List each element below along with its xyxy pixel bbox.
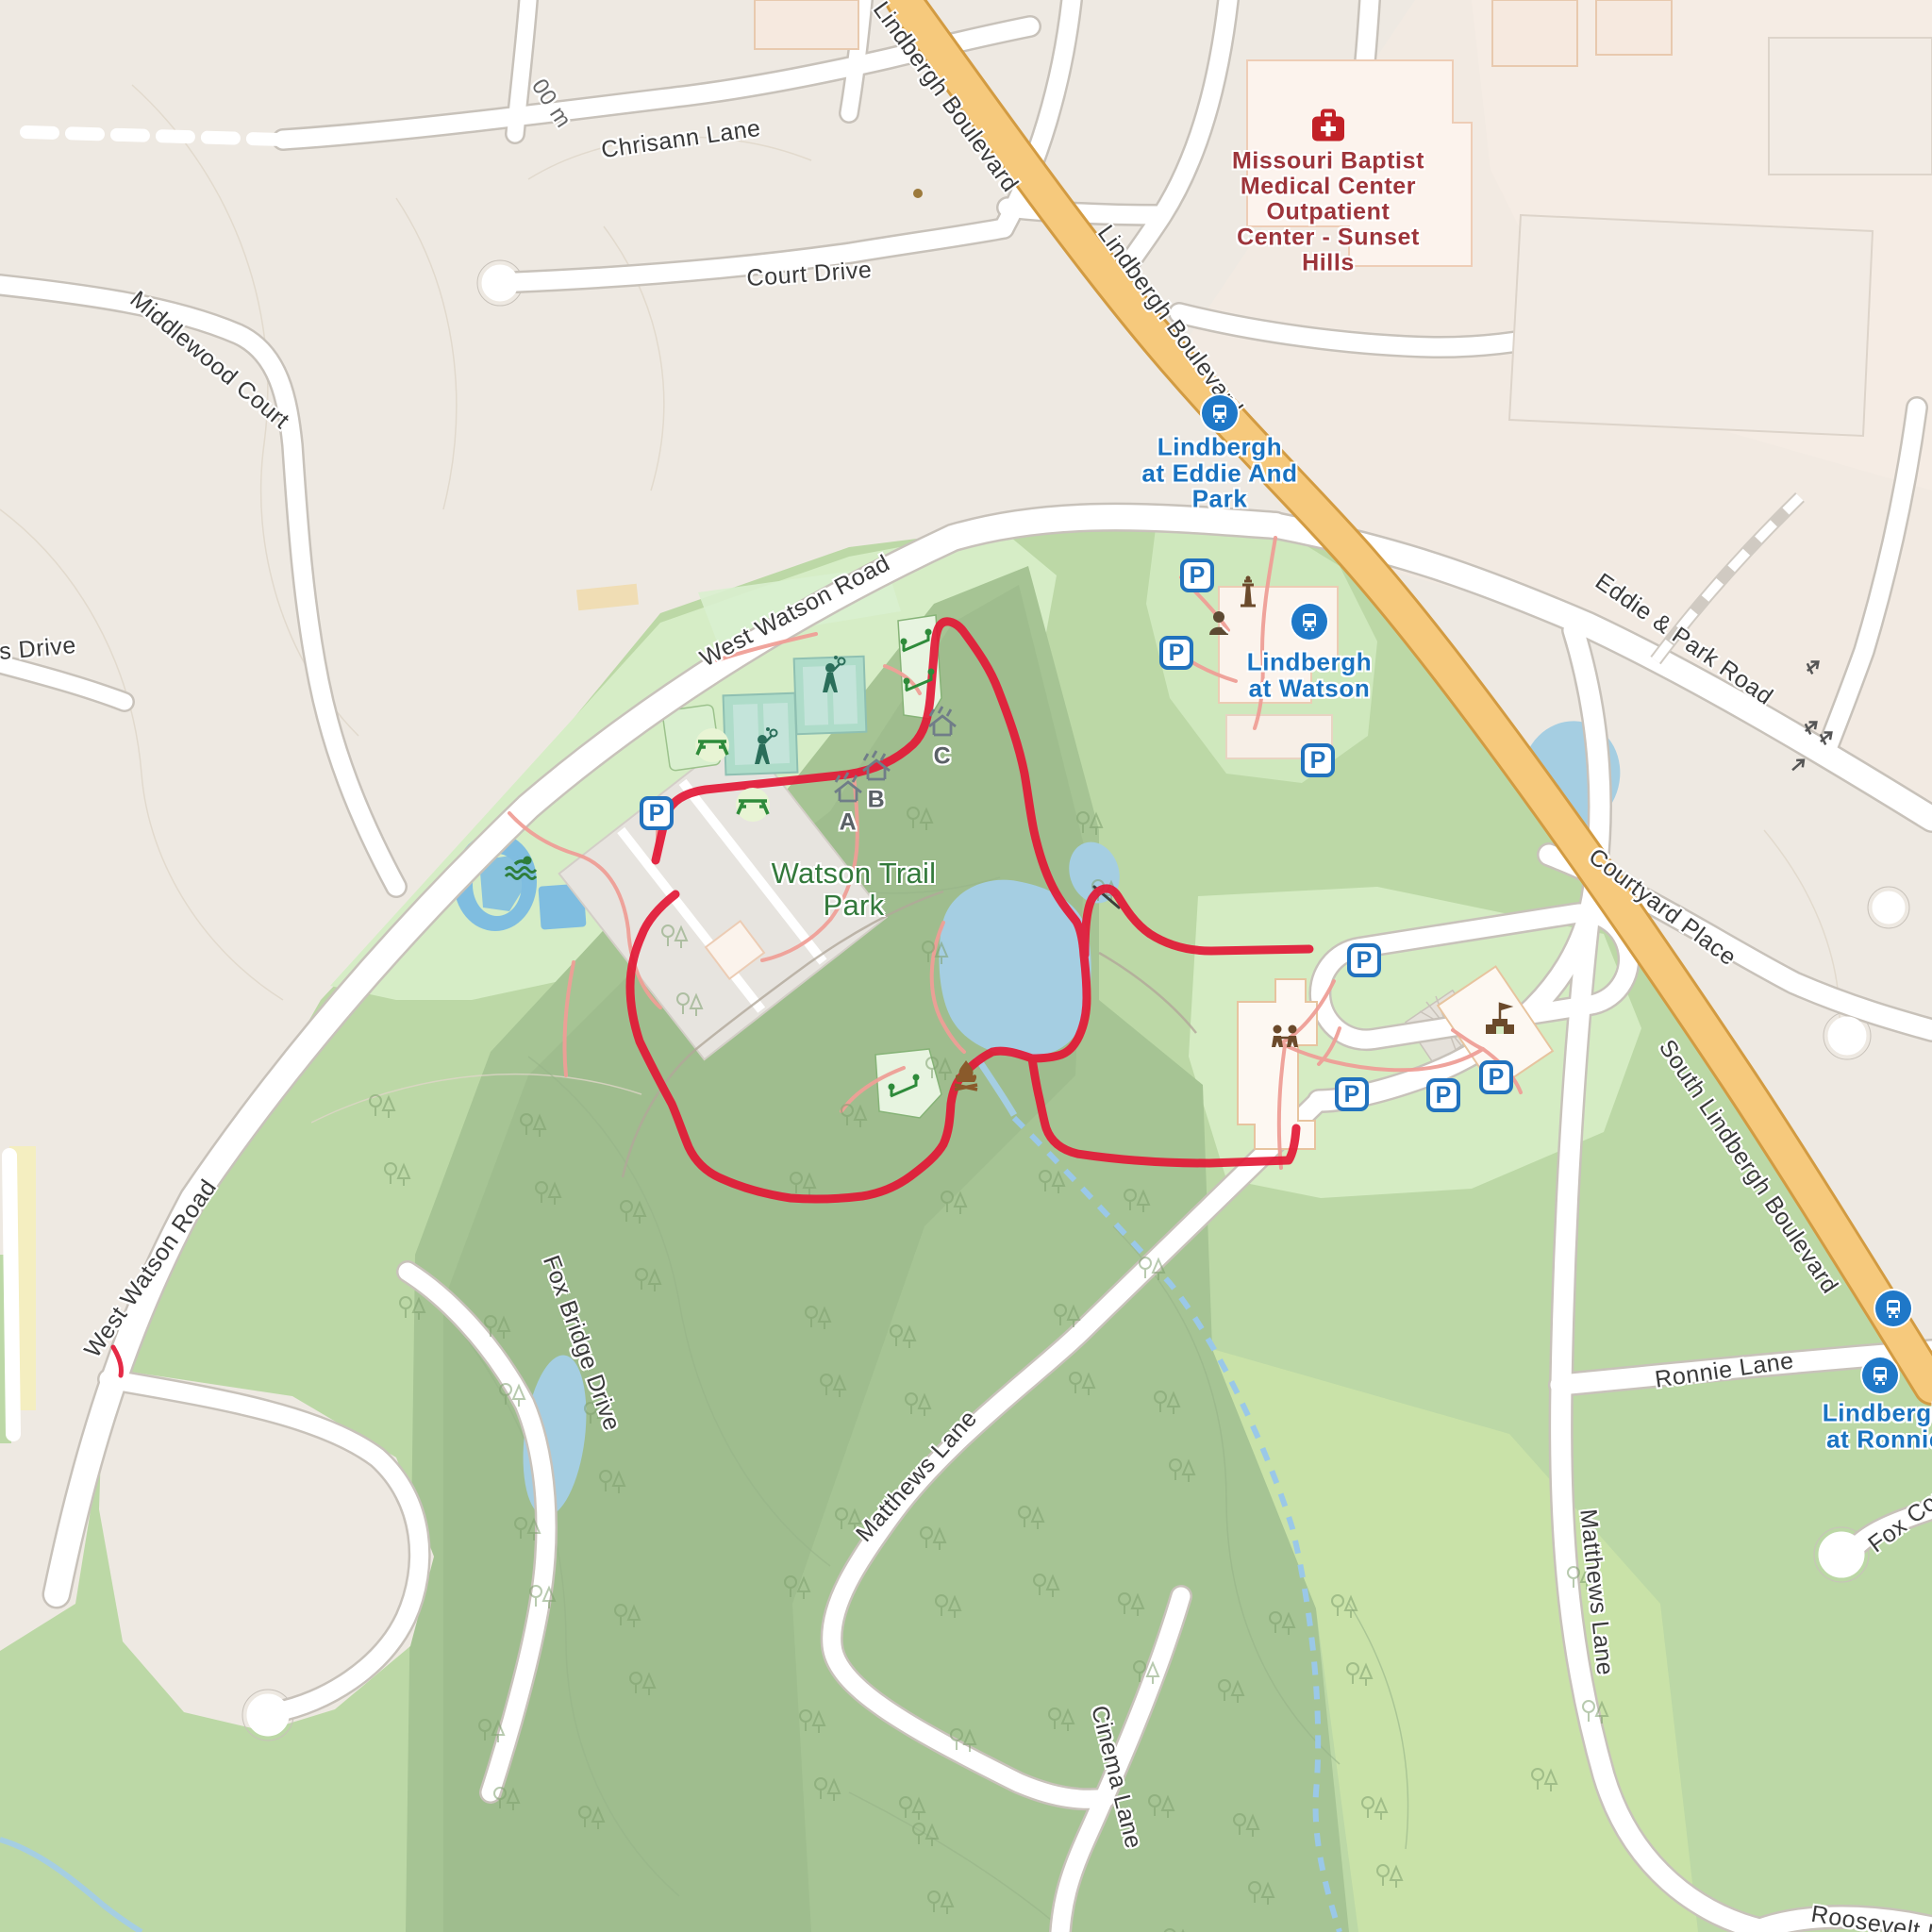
transit-label-line: at Ronnie (1823, 1426, 1932, 1453)
hospital-icon (1308, 108, 1348, 150)
bus-stop-icon (1202, 395, 1238, 431)
picnic-table-icon (736, 788, 770, 822)
parking-letter: P (1436, 1082, 1452, 1109)
transit-label-line: Park (1141, 487, 1297, 513)
transit-label-line: Lindbergh (1247, 649, 1373, 675)
transit-stop-label-ronnie: Lindbergh at Ronnie (1823, 1400, 1932, 1452)
picnic-table-icon (695, 728, 729, 762)
hospital-name-line: Hills (1232, 251, 1424, 276)
parking-icon: P (1335, 1077, 1369, 1111)
park-name-line2: Park (772, 890, 937, 922)
bus-stop-icon (1875, 1291, 1911, 1326)
retail-building (1509, 215, 1873, 436)
parking-letter: P (1344, 1081, 1360, 1108)
transit-stop-label-watson: Lindbergh at Watson (1247, 649, 1373, 701)
parking-icon: P (640, 796, 674, 830)
parking-letter: P (649, 800, 665, 827)
parking-icon: P (1301, 743, 1335, 777)
transit-label-line: Lindbergh (1141, 435, 1297, 461)
transit-label-line: at Eddie And (1141, 460, 1297, 487)
bus-stop-icon (1862, 1357, 1898, 1393)
hospital-name-line: Medical Center (1232, 175, 1424, 200)
shelter-letter-a: A (840, 809, 858, 837)
map-canvas[interactable]: Chrisann Lane Court Drive Middlewood Cou… (0, 0, 1932, 1932)
parking-letter: P (1169, 640, 1185, 667)
park-name-label: Watson Trail Park (772, 858, 937, 922)
lone-tree-dot (913, 189, 923, 198)
parking-icon: P (1426, 1078, 1460, 1112)
parking-icon: P (1479, 1060, 1513, 1094)
park-name-line1: Watson Trail (772, 858, 937, 890)
parking-letter: P (1190, 562, 1206, 590)
hospital-name-line: Missouri Baptist (1232, 149, 1424, 175)
transit-label-line: Lindbergh (1823, 1400, 1932, 1426)
hospital-name-label: Missouri Baptist Medical Center Outpatie… (1232, 149, 1424, 276)
parking-letter: P (1310, 747, 1326, 774)
shelter-letter-b: B (868, 787, 886, 814)
parking-letter: P (1489, 1064, 1505, 1091)
hospital-name-line: Center - Sunset (1232, 225, 1424, 251)
transit-stop-label-eddie: Lindbergh at Eddie And Park (1141, 435, 1297, 513)
hospital-name-line: Outpatient (1232, 200, 1424, 225)
bus-stop-icon (1291, 604, 1327, 640)
parking-icon: P (1180, 558, 1214, 592)
shelter-letter-c: C (934, 743, 952, 771)
transit-label-line: at Watson (1247, 675, 1373, 702)
parking-icon: P (1347, 943, 1381, 977)
map-base-layers (0, 0, 1932, 1932)
parking-icon: P (1159, 636, 1193, 670)
parking-letter: P (1357, 947, 1373, 974)
